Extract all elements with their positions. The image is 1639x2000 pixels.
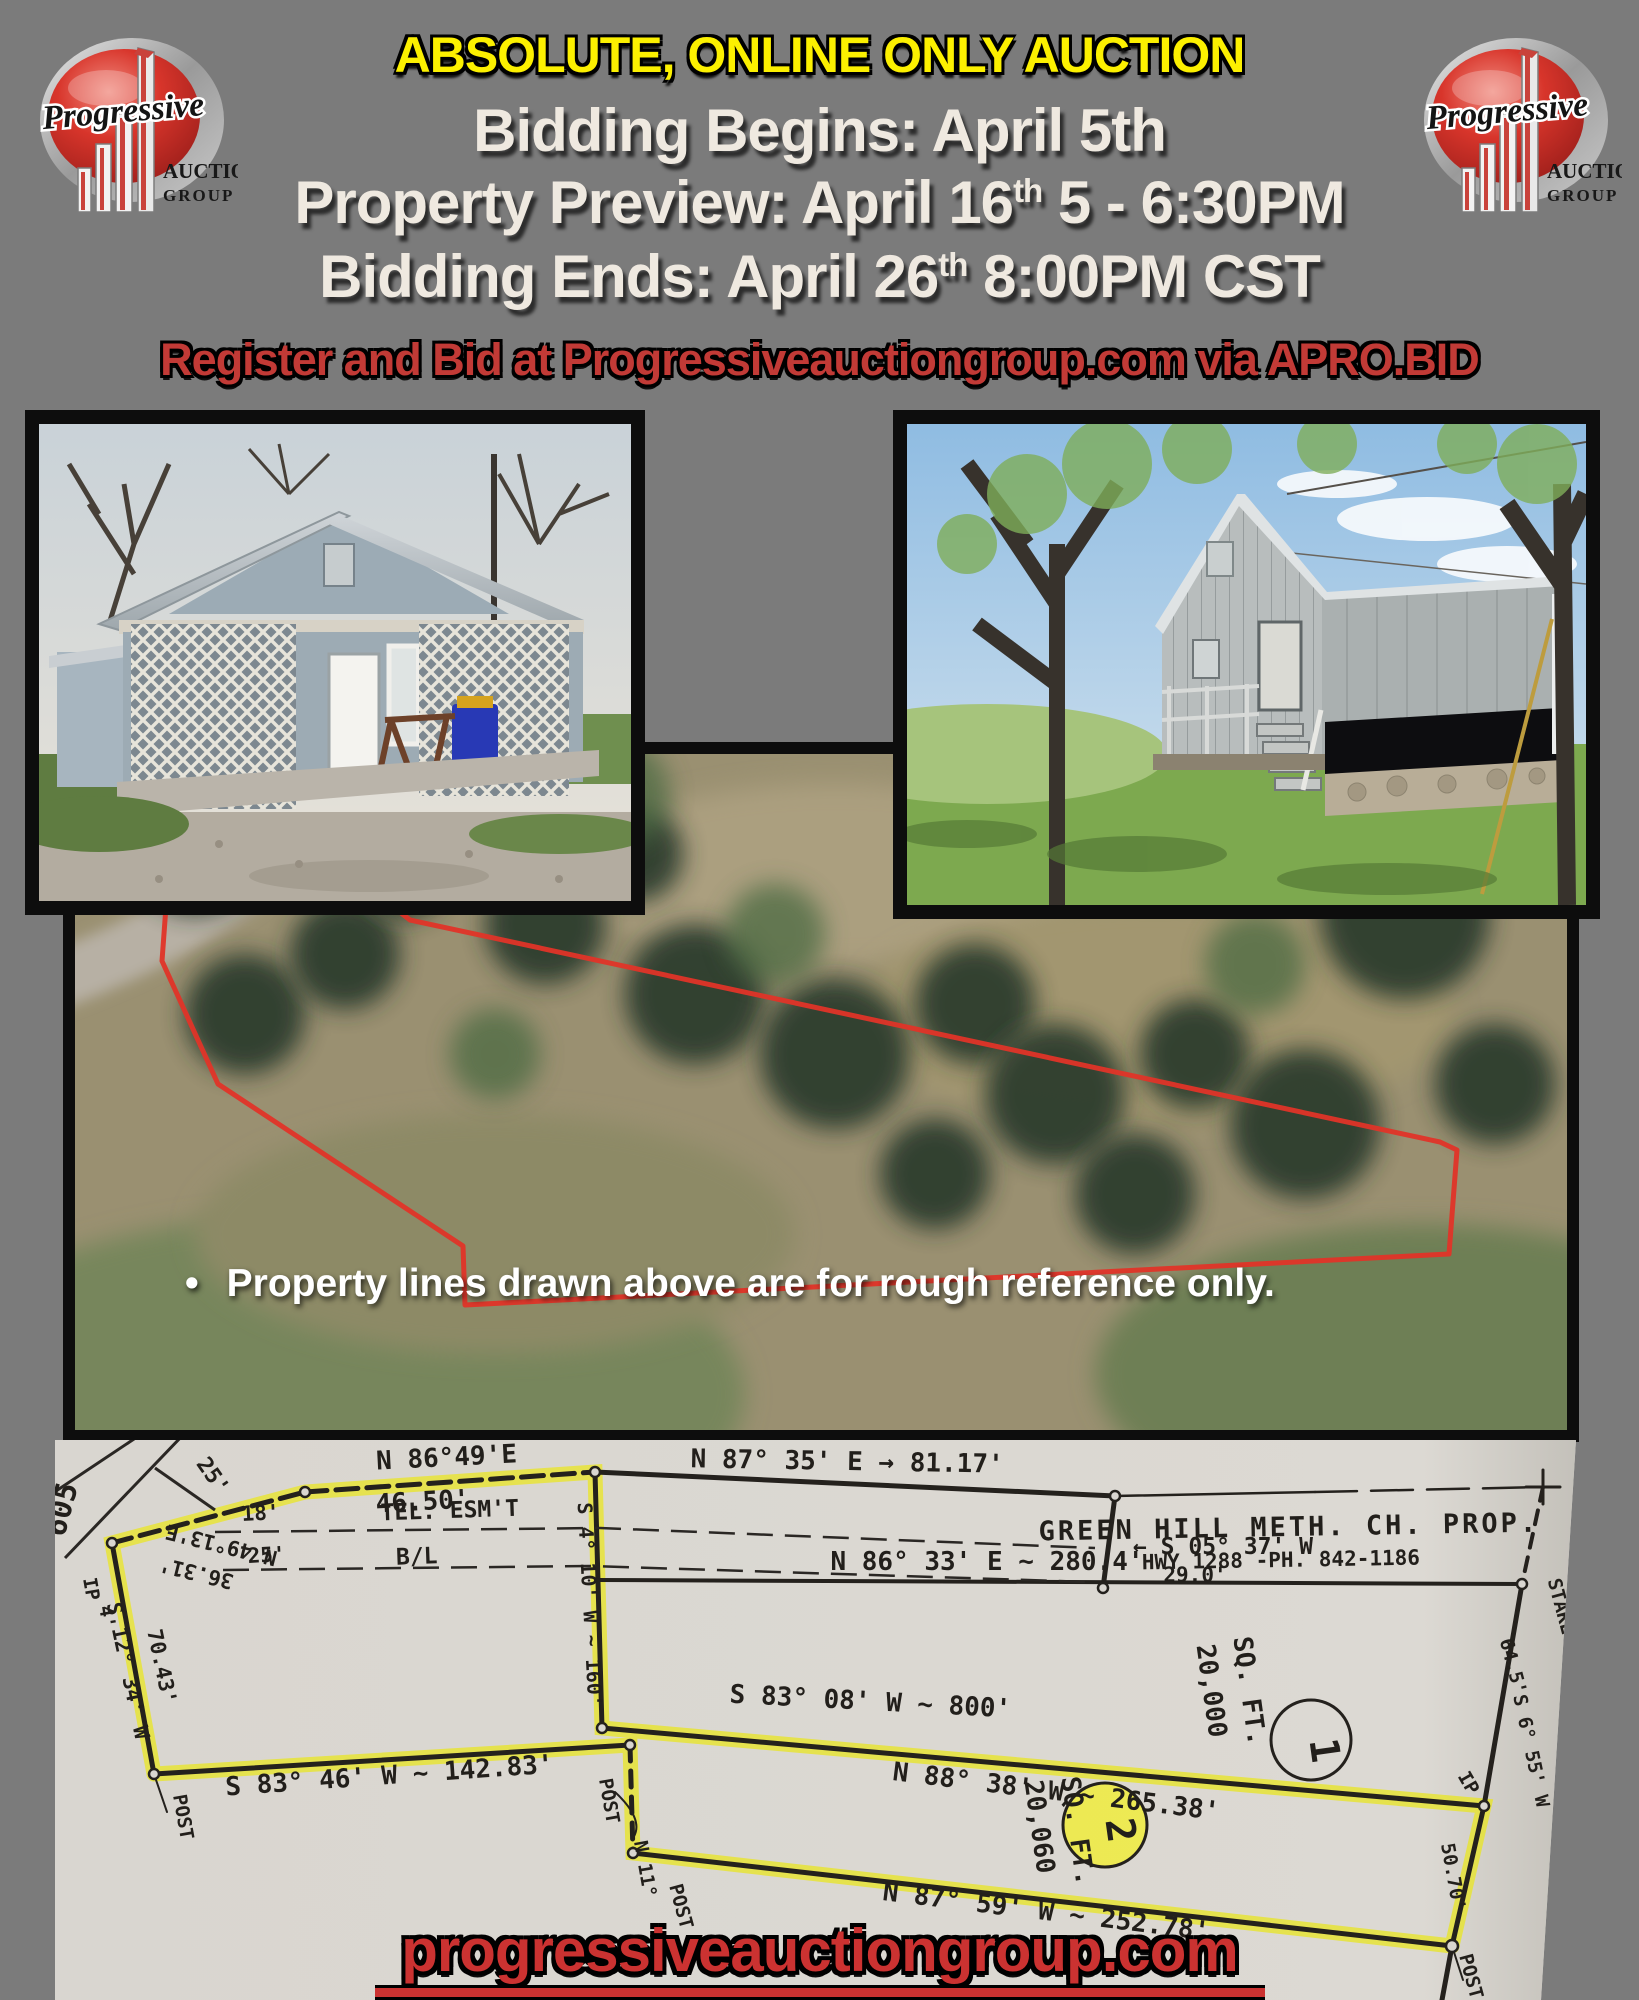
- progressive-auction-group-logo: Progressive AUCTION GROUP: [20, 26, 238, 234]
- gable-vent: [1207, 542, 1233, 576]
- deck-skirt: [1153, 754, 1325, 770]
- schedule-text: Bidding Begins: April 5th: [473, 97, 1166, 164]
- house-front-photo: [25, 410, 645, 915]
- plat-label: N 86° 33' E ~ 280.4': [830, 1547, 1143, 1577]
- plat-label: IP: [78, 1576, 104, 1602]
- plat-label: N 87° 35' E → 81.17': [690, 1444, 1004, 1479]
- schedule-line-property-preview: Property Preview: April 16th 5 - 6:30PM: [0, 168, 1639, 237]
- schedule-text: Property Preview: April 16: [294, 169, 1013, 236]
- schedule-line-bidding-ends: Bidding Ends: April 26th 8:00PM CST: [0, 242, 1639, 311]
- banner-title: ABSOLUTE, ONLINE ONLY AUCTION: [0, 26, 1639, 84]
- footer-underline: [375, 1988, 1265, 1997]
- ordinal-suffix: th: [938, 246, 967, 283]
- window: [1193, 640, 1219, 678]
- schedule-text: 5 - 6:30PM: [1042, 169, 1344, 236]
- register-and-bid-line: Register and Bid at Progressiveauctiongr…: [0, 334, 1639, 386]
- logo-word-group: GROUP: [1547, 186, 1618, 205]
- bullet-icon: •: [185, 1262, 199, 1305]
- logo-word-group: GROUP: [163, 186, 234, 205]
- plat-label: TEL. ESM'T: [380, 1496, 519, 1527]
- property-line-disclaimer: •Property lines drawn above are for roug…: [185, 1262, 1275, 1306]
- logo-word-auction: AUCTION: [1547, 159, 1622, 183]
- auction-flyer: ABSOLUTE, ONLINE ONLY AUCTION Bidding Be…: [0, 0, 1639, 2000]
- logo-word-auction: AUCTION: [163, 159, 238, 183]
- schedule-text: 8:00PM CST: [967, 243, 1319, 310]
- plat-label: 25': [247, 1542, 286, 1568]
- plat-label: 18': [241, 1500, 280, 1526]
- plat-label: HWY 1288 -PH. 842-1186: [1142, 1546, 1421, 1575]
- front-door: [329, 654, 379, 776]
- schedule-text: Bidding Ends: April 26: [319, 243, 938, 310]
- progressive-auction-group-logo: Progressive AUCTION GROUP: [1404, 26, 1622, 234]
- disclaimer-text: Property lines drawn above are for rough…: [227, 1262, 1275, 1305]
- ordinal-suffix: th: [1013, 172, 1042, 209]
- website-link[interactable]: progressiveauctiongroup.com: [0, 1916, 1639, 1985]
- back-door: [1259, 622, 1301, 710]
- barn-side-photo: [893, 410, 1600, 919]
- plat-label: B/L: [396, 1543, 438, 1570]
- schedule-line-bidding-begins: Bidding Begins: April 5th: [0, 96, 1639, 165]
